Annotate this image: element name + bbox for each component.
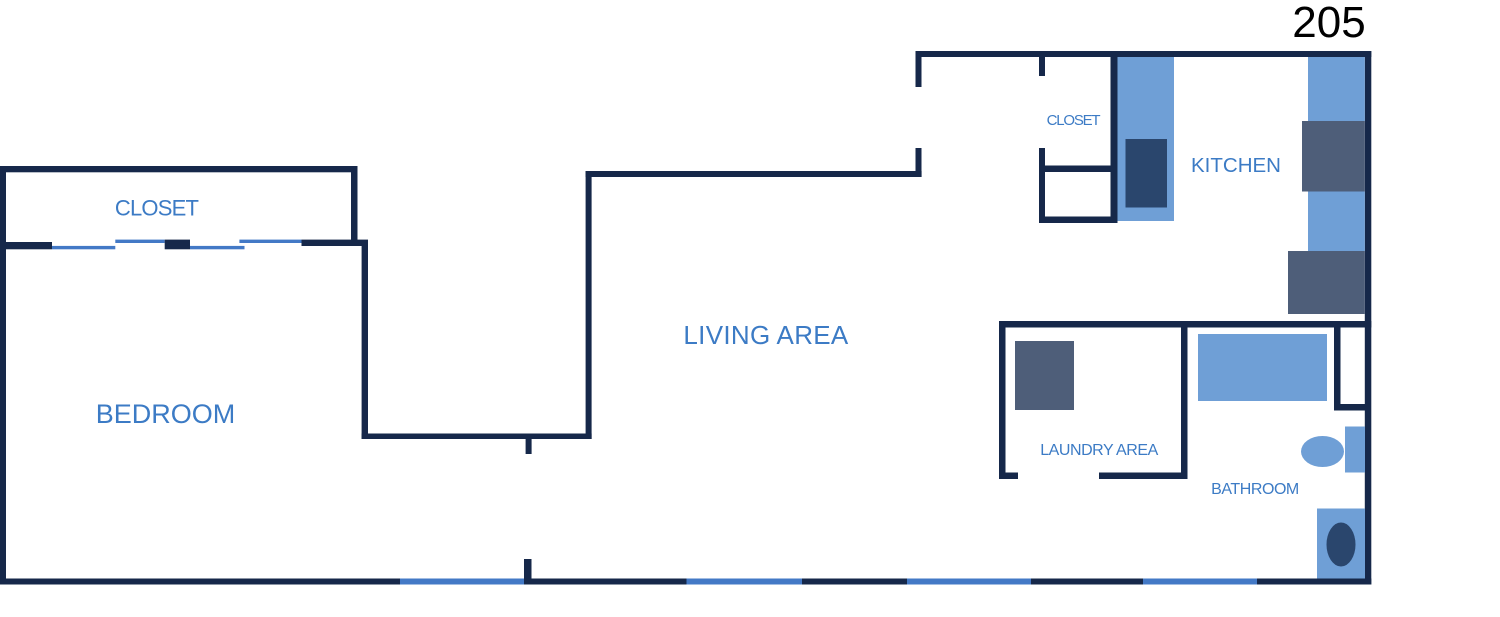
svg-text:LAUNDRY AREA: LAUNDRY AREA bbox=[1040, 442, 1158, 459]
svg-text:LIVING AREA: LIVING AREA bbox=[683, 320, 848, 350]
svg-text:CLOSET: CLOSET bbox=[1047, 112, 1101, 129]
svg-text:BATHROOM: BATHROOM bbox=[1211, 481, 1299, 498]
svg-text:205: 205 bbox=[1292, 0, 1365, 47]
svg-text:CLOSET: CLOSET bbox=[115, 196, 199, 221]
svg-text:KITCHEN: KITCHEN bbox=[1191, 154, 1281, 177]
svg-text:BEDROOM: BEDROOM bbox=[96, 399, 236, 429]
